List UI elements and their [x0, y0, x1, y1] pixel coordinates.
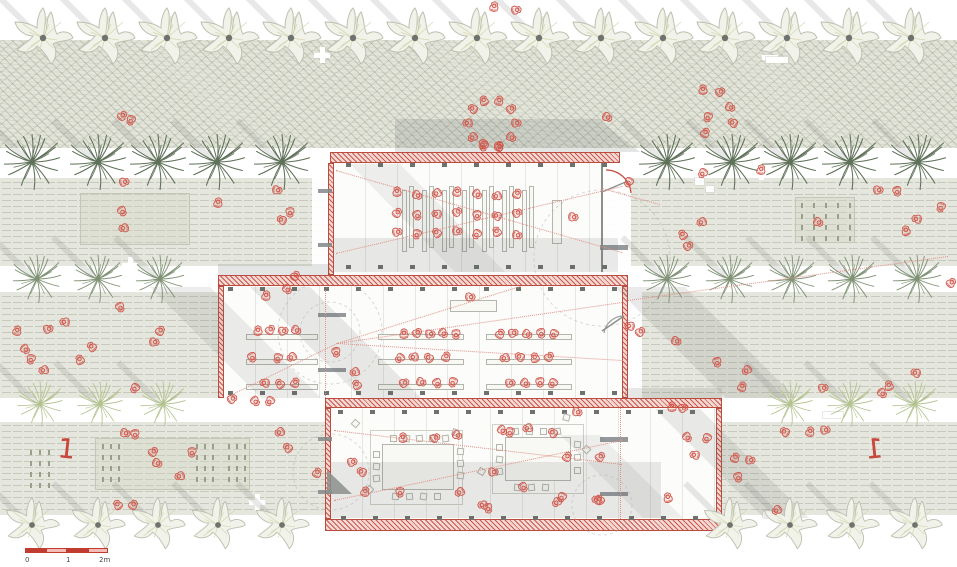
tree-shadow-streak [803, 360, 852, 409]
column-tick [388, 287, 393, 291]
person-figure [123, 495, 142, 514]
person-figure [486, 465, 500, 479]
column-tick [442, 265, 447, 269]
column-tick [324, 391, 329, 395]
chair [526, 428, 534, 436]
door-leaf [602, 181, 628, 192]
chair [442, 435, 450, 443]
person-figure [428, 374, 447, 393]
column-tick [378, 265, 383, 269]
person-figure [467, 224, 486, 243]
person-figure [508, 185, 527, 204]
tree-shadow-streak [51, 481, 100, 530]
person-figure [343, 453, 360, 470]
crop-row-dash [236, 477, 238, 482]
person-figure [116, 220, 132, 236]
person-figure [275, 323, 291, 339]
tree-shadow-streak [235, 118, 284, 167]
chair [392, 493, 400, 501]
crop-row-dash [801, 236, 803, 241]
person-figure [475, 92, 493, 110]
brick-texture-band [0, 178, 957, 266]
person-figure [665, 400, 679, 414]
person-figure [673, 225, 692, 244]
column-tick [373, 516, 378, 520]
building-end-wall [328, 163, 334, 275]
crop-row-dash [849, 214, 851, 219]
canopy-tree [68, 495, 128, 555]
person-figure [35, 361, 52, 378]
display-panel [522, 190, 527, 252]
person-figure [630, 322, 650, 342]
chair [477, 467, 487, 477]
person-figure [590, 447, 610, 467]
crop-row-dash [102, 455, 104, 460]
person-figure [447, 202, 466, 221]
canopy-tree [10, 5, 76, 71]
tree-shadow-streak [492, 0, 541, 44]
person-figure [243, 348, 261, 366]
person-figure [519, 419, 536, 436]
person-figure [619, 172, 638, 191]
paving-plus-marker [759, 164, 764, 180]
crop-row-dash [801, 203, 803, 208]
crop-row-dash [212, 444, 214, 449]
tree-shadow-streak [805, 235, 854, 284]
cast-shadow [0, 0, 957, 567]
paving-plus-marker [255, 494, 260, 510]
person-figure [269, 349, 287, 367]
canopy-tree [444, 5, 510, 71]
column-tick [356, 391, 361, 395]
chair [554, 428, 562, 436]
bench [695, 178, 704, 185]
stair-marker [327, 470, 352, 494]
canopy-tree [2, 495, 62, 555]
crop-row-dash [236, 455, 238, 460]
partition-wall [600, 492, 628, 496]
display-panel [552, 200, 562, 244]
column-tick [516, 287, 521, 291]
crop-row-dash [837, 236, 839, 241]
palm-tree [129, 248, 191, 310]
person-figure [872, 383, 892, 403]
crop-row-dash [204, 466, 206, 471]
reading-bench [486, 334, 572, 340]
person-figure [346, 363, 364, 381]
canopy-tree [760, 495, 820, 555]
person-figure [552, 487, 571, 506]
workshop-table-zone [370, 430, 463, 505]
reading-bench [378, 384, 464, 390]
column-tick [469, 516, 474, 520]
person-figure [286, 374, 304, 392]
cast-shadow [0, 0, 957, 567]
person-figure [515, 373, 535, 393]
column-tick [341, 516, 346, 520]
person-figure [674, 399, 692, 417]
person-figure [39, 320, 56, 337]
partition-wall [600, 245, 628, 250]
crop-row-dash [837, 203, 839, 208]
person-figure [282, 347, 301, 366]
hall-floor [331, 408, 716, 519]
crop-row-dash [244, 455, 246, 460]
person-figure [543, 373, 563, 393]
building-layer [0, 0, 957, 567]
person-figure [687, 447, 703, 463]
person-figure [501, 127, 521, 147]
chair [373, 451, 380, 458]
reading-bench [246, 359, 318, 365]
canopy-tree [258, 5, 324, 71]
tree-shadow-streak [113, 235, 162, 284]
palm-tree [62, 126, 134, 198]
crop-row-dash [204, 444, 206, 449]
tree-shadow-streak [743, 118, 792, 167]
person-figure [308, 464, 327, 483]
sight-line [228, 343, 337, 397]
palm-tree [754, 126, 826, 198]
tree-shadow-streak [244, 0, 293, 44]
column-tick [420, 391, 425, 395]
tree-shadow-streak [182, 0, 231, 44]
chair [434, 493, 441, 500]
reading-bench [246, 384, 318, 390]
person-figure [286, 320, 305, 339]
bench [823, 412, 843, 418]
partition-wall [600, 437, 628, 442]
person-figure [356, 483, 373, 500]
crop-row-dash [30, 472, 32, 477]
palm-tree [636, 248, 698, 310]
scale-label-2m: 2m [99, 556, 110, 564]
column-tick [594, 410, 599, 414]
person-figure [815, 380, 831, 396]
cast-shadow [0, 0, 957, 567]
canopy-tree [188, 495, 248, 555]
person-figure [71, 351, 90, 370]
person-figure [57, 314, 72, 329]
display-panel [429, 186, 434, 248]
person-figure [720, 97, 739, 116]
crop-row-dash [110, 477, 112, 482]
column-tick [602, 265, 607, 269]
display-panel [422, 190, 427, 252]
crop-row-dash [39, 450, 41, 455]
person-figure [695, 123, 714, 142]
person-figure [245, 391, 265, 411]
cast-shadow [0, 0, 957, 567]
person-figure [22, 350, 39, 367]
brick-texture-band [0, 422, 957, 515]
person-figure [709, 354, 725, 370]
bench [766, 57, 788, 63]
crop-row-dash [212, 455, 214, 460]
column-tick [538, 163, 543, 167]
sight-line-vertical [620, 400, 621, 519]
partition-wall [318, 189, 332, 193]
person-figure [737, 360, 757, 380]
person-figure [539, 347, 559, 367]
tree-shadow-streak [51, 235, 100, 284]
crop-row-dash [204, 477, 206, 482]
person-figure [557, 447, 576, 466]
crop-row-dash [212, 466, 214, 471]
person-figure [733, 378, 751, 396]
person-figure [492, 420, 512, 440]
sight-line [337, 286, 520, 344]
person-figure [941, 273, 957, 293]
tree-shadow-streak [743, 360, 792, 409]
person-figure [909, 211, 925, 227]
chair [540, 428, 547, 435]
crop-row-dash [849, 203, 851, 208]
crop-row-dash [102, 444, 104, 449]
column-tick [474, 163, 479, 167]
bench [763, 512, 779, 518]
building-wall [325, 398, 722, 408]
canopy-tree [700, 495, 760, 555]
crop-row-dash [118, 455, 120, 460]
person-figure [501, 99, 521, 119]
column-tick [437, 516, 442, 520]
person-figure [526, 349, 543, 366]
palm-tree [181, 126, 253, 198]
palm-tree [0, 126, 68, 198]
person-figure [496, 349, 513, 366]
crop-row-dash [39, 472, 41, 477]
building-wall [325, 519, 722, 531]
chair [582, 445, 592, 455]
person-figure [408, 206, 426, 224]
person-figure [387, 203, 407, 223]
crop-row-dash [825, 236, 827, 241]
paving-plus-marker [128, 257, 133, 273]
cast-shadow [0, 0, 957, 567]
column-tick [356, 287, 361, 291]
column-tick [580, 287, 585, 291]
column-tick [388, 391, 393, 395]
person-figure [678, 236, 697, 255]
chair [365, 485, 375, 495]
partition-wall [318, 243, 332, 247]
chair [457, 460, 464, 467]
column-tick [548, 391, 553, 395]
tree-shadow-streak [685, 118, 734, 167]
palm-tree [886, 375, 944, 433]
palm-tree [71, 375, 129, 433]
cast-shadow [0, 0, 957, 567]
column-tick [533, 516, 538, 520]
person-figure [475, 137, 493, 155]
person-figure [444, 373, 462, 391]
column-tick [420, 287, 425, 291]
column-tick [434, 410, 439, 414]
door-swing-arc [606, 170, 631, 193]
person-figure [448, 183, 465, 200]
person-figure [407, 185, 426, 204]
column-tick [484, 391, 489, 395]
person-figure [490, 324, 509, 343]
chair [457, 472, 465, 480]
crop-row-dash [236, 444, 238, 449]
person-figure [775, 422, 794, 441]
display-panel [442, 190, 447, 252]
column-tick [484, 287, 489, 291]
furniture-layer [0, 0, 957, 567]
person-figure [112, 106, 132, 126]
palm-tree [631, 126, 703, 198]
column-tick [260, 287, 265, 291]
paving-plus-marker [122, 263, 138, 268]
crop-row-dash [813, 225, 815, 230]
tree-shadow-streak [120, 0, 169, 44]
person-figure [881, 378, 897, 394]
swing-radius-circle [572, 475, 632, 535]
person-figure [474, 135, 492, 153]
chair [406, 493, 414, 501]
column-tick [580, 391, 585, 395]
planting-bed [80, 193, 190, 245]
person-figure [396, 431, 410, 445]
sight-line [337, 302, 622, 344]
person-figure [150, 321, 169, 340]
person-figure [753, 162, 769, 178]
tree-shadow-streak [0, 360, 43, 409]
cast-shadow [0, 0, 957, 567]
palm-tree [886, 248, 948, 310]
cast-shadow [0, 0, 957, 567]
crop-row-dash [48, 483, 50, 488]
crop-row-dash [236, 466, 238, 471]
reception-table [450, 300, 497, 312]
palm-tree [814, 126, 886, 198]
column-tick [626, 410, 631, 414]
crop-row-dash [825, 225, 827, 230]
canopy-tree [72, 5, 138, 71]
tree-shadow-streak [803, 118, 852, 167]
scale-label-0: 0 [25, 556, 29, 564]
partition-wall [318, 490, 332, 494]
crop-row-dash [30, 461, 32, 466]
planting-bed [795, 197, 855, 243]
person-figure [283, 205, 297, 219]
person-figure [907, 364, 925, 382]
chair [562, 413, 571, 422]
crop-row-dash [196, 455, 198, 460]
tree-shadow-streak [616, 0, 665, 44]
paving-dash-marker [762, 55, 778, 60]
column-tick [346, 265, 351, 269]
column-tick [570, 265, 575, 269]
crop-row-dash [813, 214, 815, 219]
crop-row-dash [118, 444, 120, 449]
person-figure [148, 454, 167, 473]
palm-tree [134, 375, 192, 433]
person-figure [501, 423, 518, 440]
tree-shadow-streak [868, 481, 917, 530]
person-figure [469, 207, 484, 222]
crop-row-dash [118, 466, 120, 471]
planting-beds-layer [0, 0, 957, 567]
chair [373, 463, 381, 471]
chair [457, 448, 464, 455]
palm-tree [761, 375, 819, 433]
glazing-wall [601, 163, 603, 272]
person-figure [125, 378, 144, 397]
column-tick [324, 287, 329, 291]
chair [528, 484, 536, 492]
column-tick [346, 163, 351, 167]
shadow-layer [0, 0, 957, 567]
person-figure [447, 425, 466, 444]
person-figure [269, 182, 285, 198]
palm-tree [696, 126, 768, 198]
person-figure [390, 348, 410, 368]
scale-label-1: 1 [66, 556, 70, 564]
person-figure [660, 490, 676, 506]
column-tick [570, 163, 575, 167]
building-end-wall [716, 408, 722, 519]
crop-row-dash [228, 477, 230, 482]
workshop-table [505, 437, 571, 481]
chair [496, 456, 504, 464]
swing-radius-circle [278, 280, 382, 384]
tree-shadow-streak [871, 118, 920, 167]
crop-row-dash [102, 466, 104, 471]
scale-bar-segment [25, 548, 46, 553]
canopy-tree [382, 5, 448, 71]
crop-row-dash [196, 466, 198, 471]
person-figure [210, 195, 226, 211]
person-figure [517, 324, 536, 343]
paving-plus-marker [249, 500, 265, 505]
crop-row-dash [102, 477, 104, 482]
person-figure [726, 449, 745, 468]
scribble-texture-band [0, 40, 957, 148]
scale-bar-segment [46, 548, 67, 553]
person-figure [461, 116, 475, 130]
person-figure [588, 491, 605, 508]
annotation-arcs-layer [0, 0, 957, 567]
person-figure [328, 344, 344, 360]
sightlines-layer [0, 0, 957, 567]
person-figure [476, 498, 490, 512]
tree-shadow-streak [802, 0, 851, 44]
canopy-tree [128, 495, 188, 555]
tree-shadow-streak [868, 360, 917, 409]
column-tick [661, 516, 666, 520]
crop-row-dash [801, 214, 803, 219]
sight-line [337, 343, 622, 361]
crop-row-dash [801, 225, 803, 230]
person-figure [463, 99, 483, 119]
crop-row-dash [48, 461, 50, 466]
palm-tree [821, 248, 883, 310]
person-figure [489, 137, 508, 156]
crop-row-dash [825, 203, 827, 208]
column-tick [228, 287, 233, 291]
reading-bench [486, 359, 572, 365]
chair [574, 467, 581, 474]
column-tick [292, 391, 297, 395]
person-figure [677, 427, 697, 447]
person-figure [116, 174, 132, 190]
person-figure [568, 403, 585, 420]
section-marker-left: 1 [57, 435, 77, 464]
crop-row-dash [813, 203, 815, 208]
